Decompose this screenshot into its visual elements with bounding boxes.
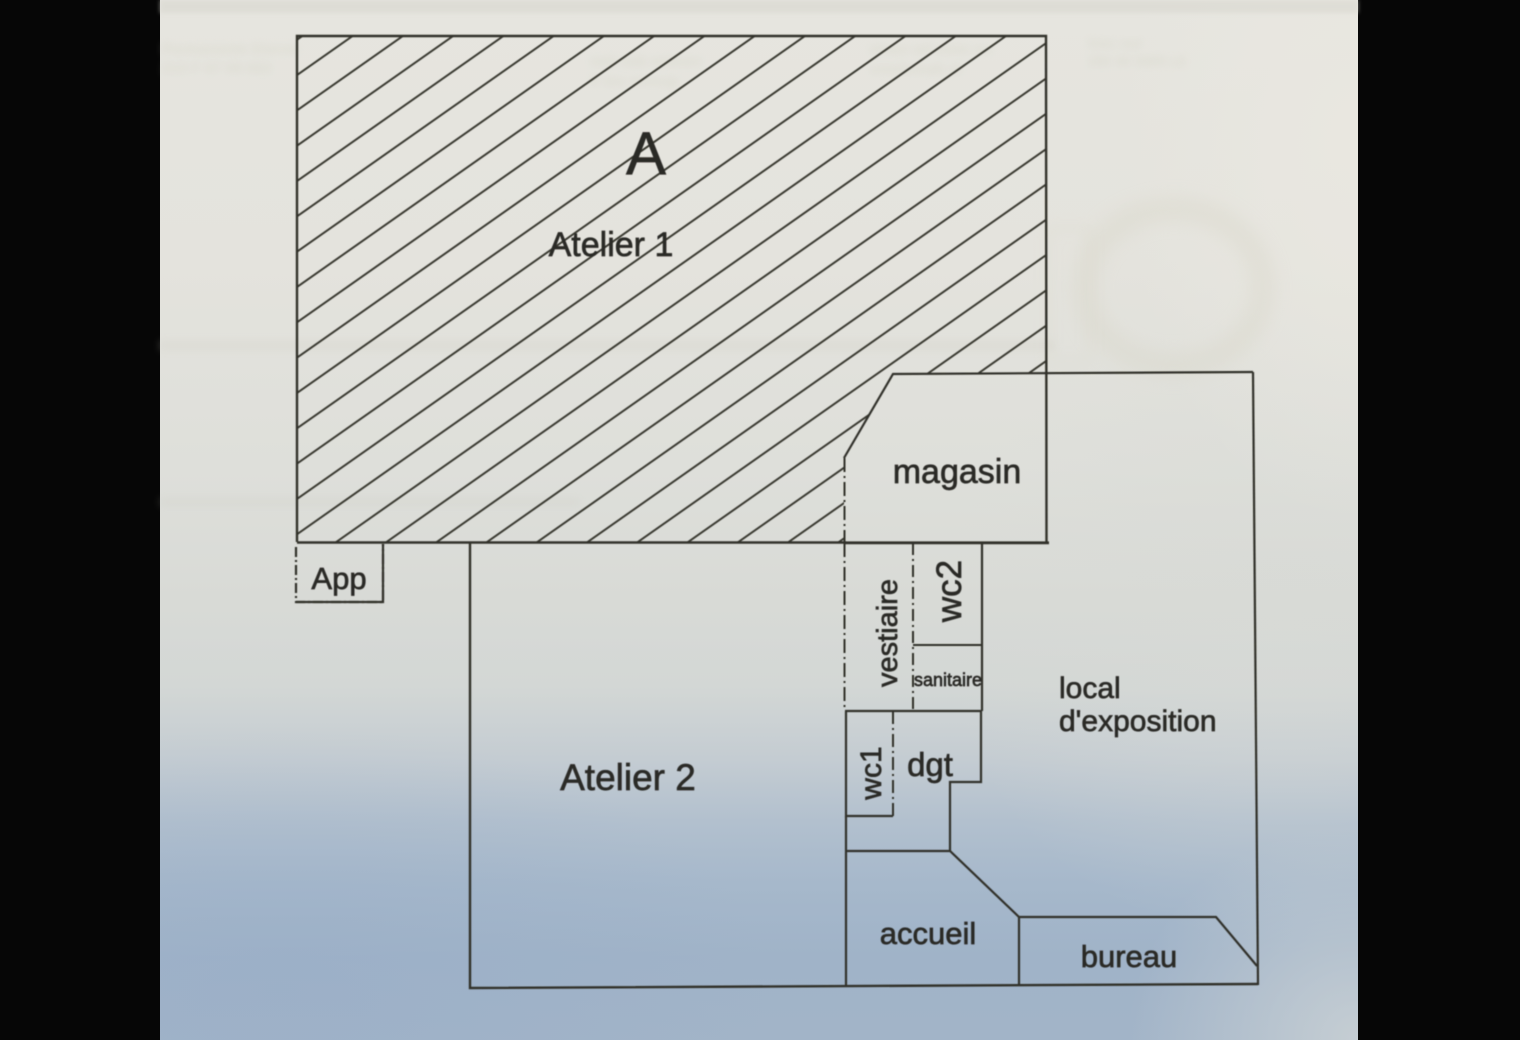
svg-text:dgt: dgt xyxy=(907,746,953,783)
svg-text:bureau: bureau xyxy=(1081,939,1178,974)
svg-text:App: App xyxy=(311,561,366,596)
svg-text:Atelier 2: Atelier 2 xyxy=(560,757,696,798)
svg-text:wc1: wc1 xyxy=(855,746,888,800)
svg-text:Atelier 1: Atelier 1 xyxy=(549,226,674,264)
svg-text:local: local xyxy=(1059,672,1121,705)
svg-text:magasin: magasin xyxy=(893,453,1022,491)
svg-text:wc2: wc2 xyxy=(930,560,969,623)
svg-text:accueil: accueil xyxy=(880,916,977,951)
svg-text:vestiaire: vestiaire xyxy=(872,579,904,687)
svg-text:A: A xyxy=(626,120,666,187)
svg-text:d'exposition: d'exposition xyxy=(1059,705,1217,738)
svg-text:sanitaire: sanitaire xyxy=(914,670,982,690)
